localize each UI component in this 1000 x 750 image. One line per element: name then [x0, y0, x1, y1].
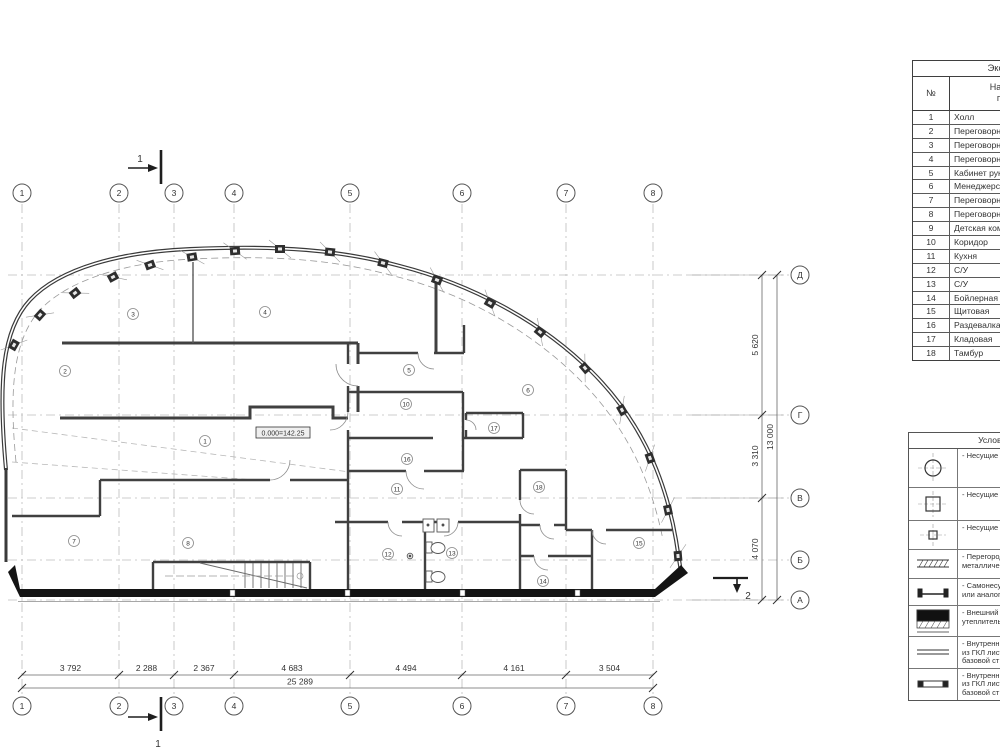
- svg-text:16: 16: [403, 456, 411, 463]
- grid-bubble-col-4-top: 4: [225, 184, 243, 202]
- legend-text: металличе: [962, 562, 1000, 571]
- column-marker: [61, 279, 89, 307]
- room-table-row: 7 Переговорная: [913, 194, 1000, 208]
- grid-bubble-col-7-bottom: 7: [557, 697, 575, 715]
- room-number-cell: 18: [913, 347, 950, 360]
- svg-text:15: 15: [635, 540, 643, 547]
- room-table-row: 9 Детская комната: [913, 222, 1000, 236]
- room-number-3: 3: [128, 309, 139, 320]
- room-name-cell: Переговорная: [950, 153, 1000, 166]
- room-number-cell: 7: [913, 194, 950, 207]
- grid-bubble-col-3-bottom: 3: [165, 697, 183, 715]
- legend-row: - Несущие: [909, 521, 1000, 550]
- room-number-6: 6: [523, 385, 534, 396]
- room-number-cell: 17: [913, 333, 950, 346]
- dim-d-g: 5 620: [750, 334, 760, 356]
- svg-text:18: 18: [535, 484, 543, 491]
- svg-text:7: 7: [72, 538, 76, 545]
- svg-text:А: А: [797, 595, 803, 605]
- grid-bubble-col-5-bottom: 5: [341, 697, 359, 715]
- svg-text:7: 7: [564, 701, 569, 711]
- room-name-cell: Тамбур: [950, 347, 1000, 360]
- sanitary-fixtures: [407, 519, 449, 583]
- room-table-row: 15 Щитовая: [913, 305, 1000, 319]
- room-number-11: 11: [392, 484, 403, 495]
- column-round-icon: [910, 450, 956, 486]
- svg-text:Д: Д: [797, 270, 803, 280]
- room-table-header: № Наименование помещения: [913, 77, 1000, 111]
- svg-text:1: 1: [203, 438, 207, 445]
- svg-text:2: 2: [63, 368, 67, 375]
- room-number-cell: 14: [913, 292, 950, 305]
- right-dimensions: 5 620 3 310 4 070 13 000: [688, 271, 784, 604]
- grid-bubble-col-4-bottom: 4: [225, 697, 243, 715]
- room-table-row: 10 Коридор: [913, 236, 1000, 250]
- grid-bubble-row-Б: Б: [791, 551, 809, 569]
- svg-text:13: 13: [448, 550, 456, 557]
- room-number-8: 8: [183, 538, 194, 549]
- room-name-cell: Кладовая: [950, 333, 1000, 346]
- room-name-cell: Переговорная: [950, 125, 1000, 138]
- dim-7-8: 3 504: [599, 663, 621, 673]
- partition-bracket-icon: [910, 580, 956, 604]
- section-label-top: 1: [137, 154, 143, 165]
- legend-text: утеплитель: [962, 618, 1000, 627]
- room-table-title: Экспликация помещений: [913, 61, 1000, 77]
- legend-title: Условные обозначения: [909, 433, 1000, 449]
- elevation-mark: 0.000=142.25: [256, 427, 310, 438]
- room-number-cell: 13: [913, 278, 950, 291]
- entrance-stairs: [165, 563, 307, 588]
- legend-text: - Несущие: [962, 524, 1000, 533]
- svg-text:1: 1: [20, 701, 25, 711]
- room-name-cell: Кухня: [950, 250, 1000, 263]
- svg-text:6: 6: [526, 387, 530, 394]
- section-mark-1-top: 1: [128, 150, 161, 184]
- dim-g-v: 3 310: [750, 445, 760, 467]
- legend-row: - Внешний утеплитель: [909, 606, 1000, 637]
- name-header-line2: помещения: [950, 93, 1000, 104]
- dim-6-7: 4 161: [503, 663, 525, 673]
- room-number-cell: 8: [913, 208, 950, 221]
- room-schedule-table: Экспликация помещений № Наименование пом…: [912, 60, 1000, 361]
- room-number-7: 7: [69, 536, 80, 547]
- grid-bubble-col-6-top: 6: [453, 184, 471, 202]
- section-label-right: 2: [745, 591, 751, 602]
- bottom-dimensions: 3 792 2 288 2 367 4 683 4 494 4 161 3 50…: [18, 663, 657, 692]
- svg-text:В: В: [797, 493, 803, 503]
- svg-text:8: 8: [651, 188, 656, 198]
- room-number-15: 15: [634, 538, 645, 549]
- room-number-14: 14: [538, 576, 549, 587]
- room-number-labels: 12345678101112131415161718: [60, 307, 645, 587]
- svg-text:5: 5: [348, 188, 353, 198]
- room-table-row: 1 Холл: [913, 111, 1000, 125]
- room-name-cell: Переговорная: [950, 139, 1000, 152]
- dim-1-2: 3 792: [60, 663, 82, 673]
- dim-total-bottom: 25 289: [287, 677, 313, 687]
- floor-plan-canvas: 0.000=142.25 3 792 2 288 2 367 4 683 4 4…: [0, 0, 1000, 750]
- legend-table: Условные обозначения - Несущие - Несущие…: [908, 432, 1000, 701]
- legend-row: - Самонесу или аналог: [909, 579, 1000, 606]
- room-table-row: 3 Переговорная: [913, 139, 1000, 153]
- grid-bubble-col-2-bottom: 2: [110, 697, 128, 715]
- svg-text:3: 3: [172, 188, 177, 198]
- grid-bubbles: 1122334455667788ДГВБА: [13, 184, 809, 715]
- room-name-cell: Холл: [950, 111, 1000, 124]
- grid-bubble-col-3-top: 3: [165, 184, 183, 202]
- room-name-cell: Щитовая: [950, 305, 1000, 318]
- external-wall-icon: [910, 606, 956, 636]
- grid-bubble-col-6-bottom: 6: [453, 697, 471, 715]
- section-mark-1-bottom: 1: [128, 697, 161, 750]
- svg-text:Б: Б: [797, 555, 803, 565]
- dim-3-4: 2 367: [193, 663, 215, 673]
- room-number-cell: 15: [913, 305, 950, 318]
- room-number-cell: 1: [913, 111, 950, 124]
- svg-text:4: 4: [232, 701, 237, 711]
- room-number-4: 4: [260, 307, 271, 318]
- room-number-cell: 2: [913, 125, 950, 138]
- room-name-cell: Кабинет руководителя: [950, 167, 1000, 180]
- grid-bubble-col-2-top: 2: [110, 184, 128, 202]
- svg-text:2: 2: [117, 701, 122, 711]
- legend-text: или аналог: [962, 591, 1000, 600]
- room-number-cell: 6: [913, 180, 950, 193]
- svg-text:2: 2: [117, 188, 122, 198]
- room-number-cell: 3: [913, 139, 950, 152]
- facade-curve: [2, 248, 681, 572]
- room-table-row: 18 Тамбур: [913, 347, 1000, 360]
- elevation-value: 0.000=142.25: [261, 431, 304, 438]
- svg-text:4: 4: [232, 188, 237, 198]
- column-marker: [638, 445, 662, 472]
- grid-bubble-col-7-top: 7: [557, 184, 575, 202]
- legend-row: - Несущие: [909, 449, 1000, 488]
- svg-text:Г: Г: [798, 410, 803, 420]
- room-number-cell: 4: [913, 153, 950, 166]
- svg-text:8: 8: [651, 701, 656, 711]
- drawing-sheet: { "colors":{"wall":"#3f3f3f","exterior_b…: [0, 0, 1000, 750]
- section-label-bottom: 1: [155, 739, 161, 750]
- room-number-cell: 5: [913, 167, 950, 180]
- room-number-16: 16: [402, 454, 413, 465]
- grid-bubble-col-5-top: 5: [341, 184, 359, 202]
- svg-text:8: 8: [186, 540, 190, 547]
- legend-text: базовой ст: [962, 657, 1000, 666]
- legend-row: - Перегород металличе: [909, 550, 1000, 579]
- column-marker: [99, 264, 127, 290]
- svg-text:3: 3: [172, 701, 177, 711]
- legend-row: - Внутренн из ГКЛ лист базовой ст: [909, 669, 1000, 700]
- room-table-name-header: Наименование помещения: [950, 77, 1000, 110]
- dim-2-3: 2 288: [136, 663, 158, 673]
- dim-total-right: 13 000: [765, 424, 775, 450]
- column-marker: [26, 301, 54, 329]
- legend-text: - Несущие: [962, 491, 1000, 500]
- svg-text:3: 3: [131, 311, 135, 318]
- grid-bubble-row-Д: Д: [791, 266, 809, 284]
- room-number-cell: 10: [913, 236, 950, 249]
- dim-4-5: 4 683: [281, 663, 303, 673]
- svg-text:7: 7: [564, 188, 569, 198]
- room-number-1: 1: [200, 436, 211, 447]
- grid-lines: [8, 204, 789, 696]
- svg-text:12: 12: [384, 551, 392, 558]
- section-mark-2-right: 2: [713, 578, 751, 602]
- room-name-cell: Переговорная: [950, 194, 1000, 207]
- room-table-row: 12 С/У: [913, 264, 1000, 278]
- room-number-cell: 16: [913, 319, 950, 332]
- room-name-cell: Бойлерная: [950, 292, 1000, 305]
- grid-bubble-row-Г: Г: [791, 406, 809, 424]
- room-table-row: 13 С/У: [913, 278, 1000, 292]
- svg-text:5: 5: [407, 367, 411, 374]
- svg-text:17: 17: [490, 425, 498, 432]
- room-number-cell: 11: [913, 250, 950, 263]
- room-name-cell: Коридор: [950, 236, 1000, 249]
- grid-bubble-row-А: А: [791, 591, 809, 609]
- legend-row: - Несущие: [909, 488, 1000, 521]
- svg-text:6: 6: [460, 188, 465, 198]
- grid-bubble-row-В: В: [791, 489, 809, 507]
- room-name-cell: С/У: [950, 264, 1000, 277]
- grid-bubble-col-1-top: 1: [13, 184, 31, 202]
- gkl-wall-icon: [910, 640, 956, 664]
- dim-v-a: 4 070: [750, 538, 760, 560]
- column-small-icon: [910, 522, 956, 548]
- room-table-row: 14 Бойлерная: [913, 292, 1000, 306]
- room-table-row: 16 Раздевалка: [913, 319, 1000, 333]
- room-name-cell: Детская комната: [950, 222, 1000, 235]
- room-name-cell: Менеджерская: [950, 180, 1000, 193]
- svg-text:5: 5: [348, 701, 353, 711]
- partition-hatched-icon: [910, 551, 956, 577]
- column-square-icon: [910, 489, 956, 519]
- legend-text: базовой ст: [962, 689, 1000, 698]
- room-number-12: 12: [383, 549, 394, 560]
- room-table-num-header: №: [913, 77, 950, 110]
- gkl-wall2-icon: [910, 672, 956, 696]
- room-number-5: 5: [404, 365, 415, 376]
- room-number-18: 18: [534, 482, 545, 493]
- room-number-10: 10: [401, 399, 412, 410]
- svg-text:14: 14: [539, 578, 547, 585]
- grid-bubble-col-8-top: 8: [644, 184, 662, 202]
- room-number-2: 2: [60, 366, 71, 377]
- legend-row: - Внутренн из ГКЛ лист базовой ст: [909, 637, 1000, 669]
- legend-text: - Несущие: [962, 452, 1000, 461]
- room-name-cell: Переговорная: [950, 208, 1000, 221]
- room-table-row: 8 Переговорная: [913, 208, 1000, 222]
- dim-5-6: 4 494: [395, 663, 417, 673]
- name-header-line1: Наименование: [950, 82, 1000, 93]
- room-number-13: 13: [447, 548, 458, 559]
- svg-text:4: 4: [263, 309, 267, 316]
- door-swings: [270, 353, 606, 570]
- room-number-cell: 9: [913, 222, 950, 235]
- room-table-body: 1 Холл 2 Переговорная 3 Переговорная 4 П…: [913, 111, 1000, 360]
- room-table-row: 17 Кладовая: [913, 333, 1000, 347]
- grid-bubble-col-8-bottom: 8: [644, 697, 662, 715]
- room-name-cell: Раздевалка: [950, 319, 1000, 332]
- facade-columns: [1, 240, 688, 568]
- room-name-cell: С/У: [950, 278, 1000, 291]
- room-table-row: 2 Переговорная: [913, 125, 1000, 139]
- room-table-row: 5 Кабинет руководителя: [913, 167, 1000, 181]
- room-number-cell: 12: [913, 264, 950, 277]
- room-table-row: 6 Менеджерская: [913, 180, 1000, 194]
- svg-text:11: 11: [394, 486, 401, 493]
- grid-bubble-col-1-bottom: 1: [13, 697, 31, 715]
- room-table-row: 11 Кухня: [913, 250, 1000, 264]
- svg-text:6: 6: [460, 701, 465, 711]
- svg-text:1: 1: [20, 188, 25, 198]
- svg-text:10: 10: [402, 401, 410, 408]
- room-number-17: 17: [489, 423, 500, 434]
- room-table-row: 4 Переговорная: [913, 153, 1000, 167]
